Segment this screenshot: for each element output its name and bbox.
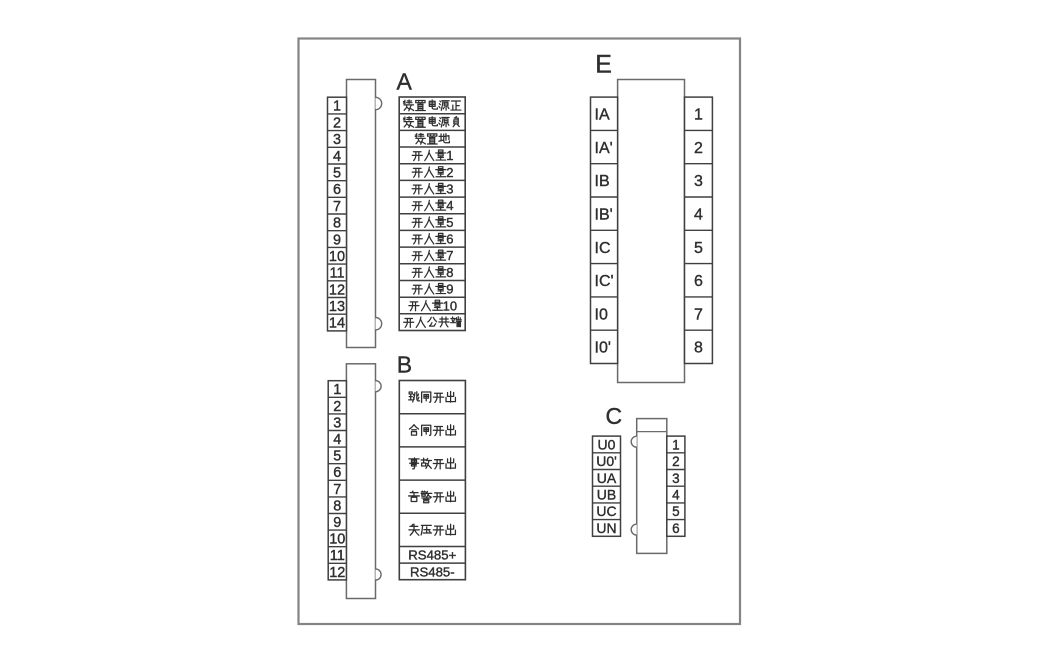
svg-text:1: 1 (672, 437, 680, 452)
svg-text:7: 7 (333, 199, 341, 215)
svg-text:UC: UC (596, 503, 616, 519)
svg-text:3: 3 (446, 182, 453, 197)
svg-text:IB: IB (595, 173, 610, 190)
svg-text:U0: U0 (598, 437, 616, 453)
svg-text:7: 7 (694, 306, 703, 323)
svg-text:6: 6 (333, 465, 341, 481)
svg-text:4: 4 (333, 432, 341, 448)
svg-text:2: 2 (333, 399, 341, 415)
svg-text:1: 1 (333, 99, 341, 115)
svg-text:12: 12 (329, 282, 345, 298)
svg-text:5: 5 (333, 166, 341, 182)
svg-text:10: 10 (329, 532, 345, 548)
svg-text:C: C (606, 403, 623, 429)
svg-text:IA': IA' (595, 140, 613, 157)
svg-text:5: 5 (333, 449, 341, 465)
svg-text:12: 12 (329, 565, 345, 581)
svg-text:8: 8 (694, 340, 703, 357)
svg-text:UA: UA (597, 470, 617, 486)
svg-text:IA: IA (595, 107, 610, 124)
svg-text:UB: UB (597, 487, 616, 503)
svg-text:6: 6 (694, 273, 703, 290)
svg-text:8: 8 (333, 216, 341, 232)
svg-text:6: 6 (672, 521, 680, 536)
svg-text:7: 7 (333, 482, 341, 498)
svg-text:I0: I0 (595, 306, 608, 323)
svg-text:6: 6 (333, 182, 341, 198)
svg-text:8: 8 (446, 265, 453, 280)
svg-text:9: 9 (333, 515, 341, 531)
svg-text:2: 2 (694, 140, 703, 157)
svg-text:5: 5 (446, 215, 453, 230)
svg-text:11: 11 (329, 266, 344, 282)
svg-text:1: 1 (333, 382, 341, 398)
svg-text:RS485+: RS485+ (408, 548, 456, 563)
svg-text:8: 8 (333, 498, 341, 514)
svg-text:11: 11 (330, 548, 345, 564)
svg-text:4: 4 (672, 488, 680, 503)
svg-text:3: 3 (333, 415, 341, 431)
svg-text:I0': I0' (595, 340, 611, 357)
svg-text:2: 2 (333, 115, 341, 131)
svg-text:IB': IB' (595, 207, 613, 224)
svg-text:10: 10 (329, 249, 345, 265)
svg-text:6: 6 (446, 232, 453, 247)
svg-text:IC': IC' (595, 273, 614, 290)
svg-text:1: 1 (446, 148, 453, 163)
svg-text:3: 3 (694, 173, 703, 190)
svg-text:A: A (397, 69, 413, 95)
svg-text:2: 2 (446, 165, 453, 180)
svg-text:9: 9 (446, 282, 453, 297)
svg-text:4: 4 (333, 149, 341, 165)
svg-text:13: 13 (329, 299, 345, 315)
svg-text:4: 4 (694, 207, 703, 224)
svg-text:U0': U0' (596, 453, 617, 469)
svg-text:9: 9 (333, 232, 341, 248)
svg-text:UN: UN (596, 520, 616, 536)
svg-text:7: 7 (446, 248, 453, 263)
svg-text:IC: IC (595, 240, 611, 257)
svg-text:RS485-: RS485- (410, 564, 455, 579)
svg-text:5: 5 (672, 504, 680, 519)
svg-text:10: 10 (443, 298, 457, 313)
svg-text:3: 3 (672, 471, 680, 486)
svg-text:1: 1 (694, 107, 703, 124)
svg-text:B: B (397, 352, 412, 378)
svg-text:14: 14 (329, 316, 345, 332)
svg-text:5: 5 (694, 240, 703, 257)
svg-text:3: 3 (333, 132, 341, 148)
svg-text:2: 2 (672, 454, 680, 469)
svg-text:E: E (595, 51, 612, 79)
svg-text:4: 4 (446, 198, 453, 213)
